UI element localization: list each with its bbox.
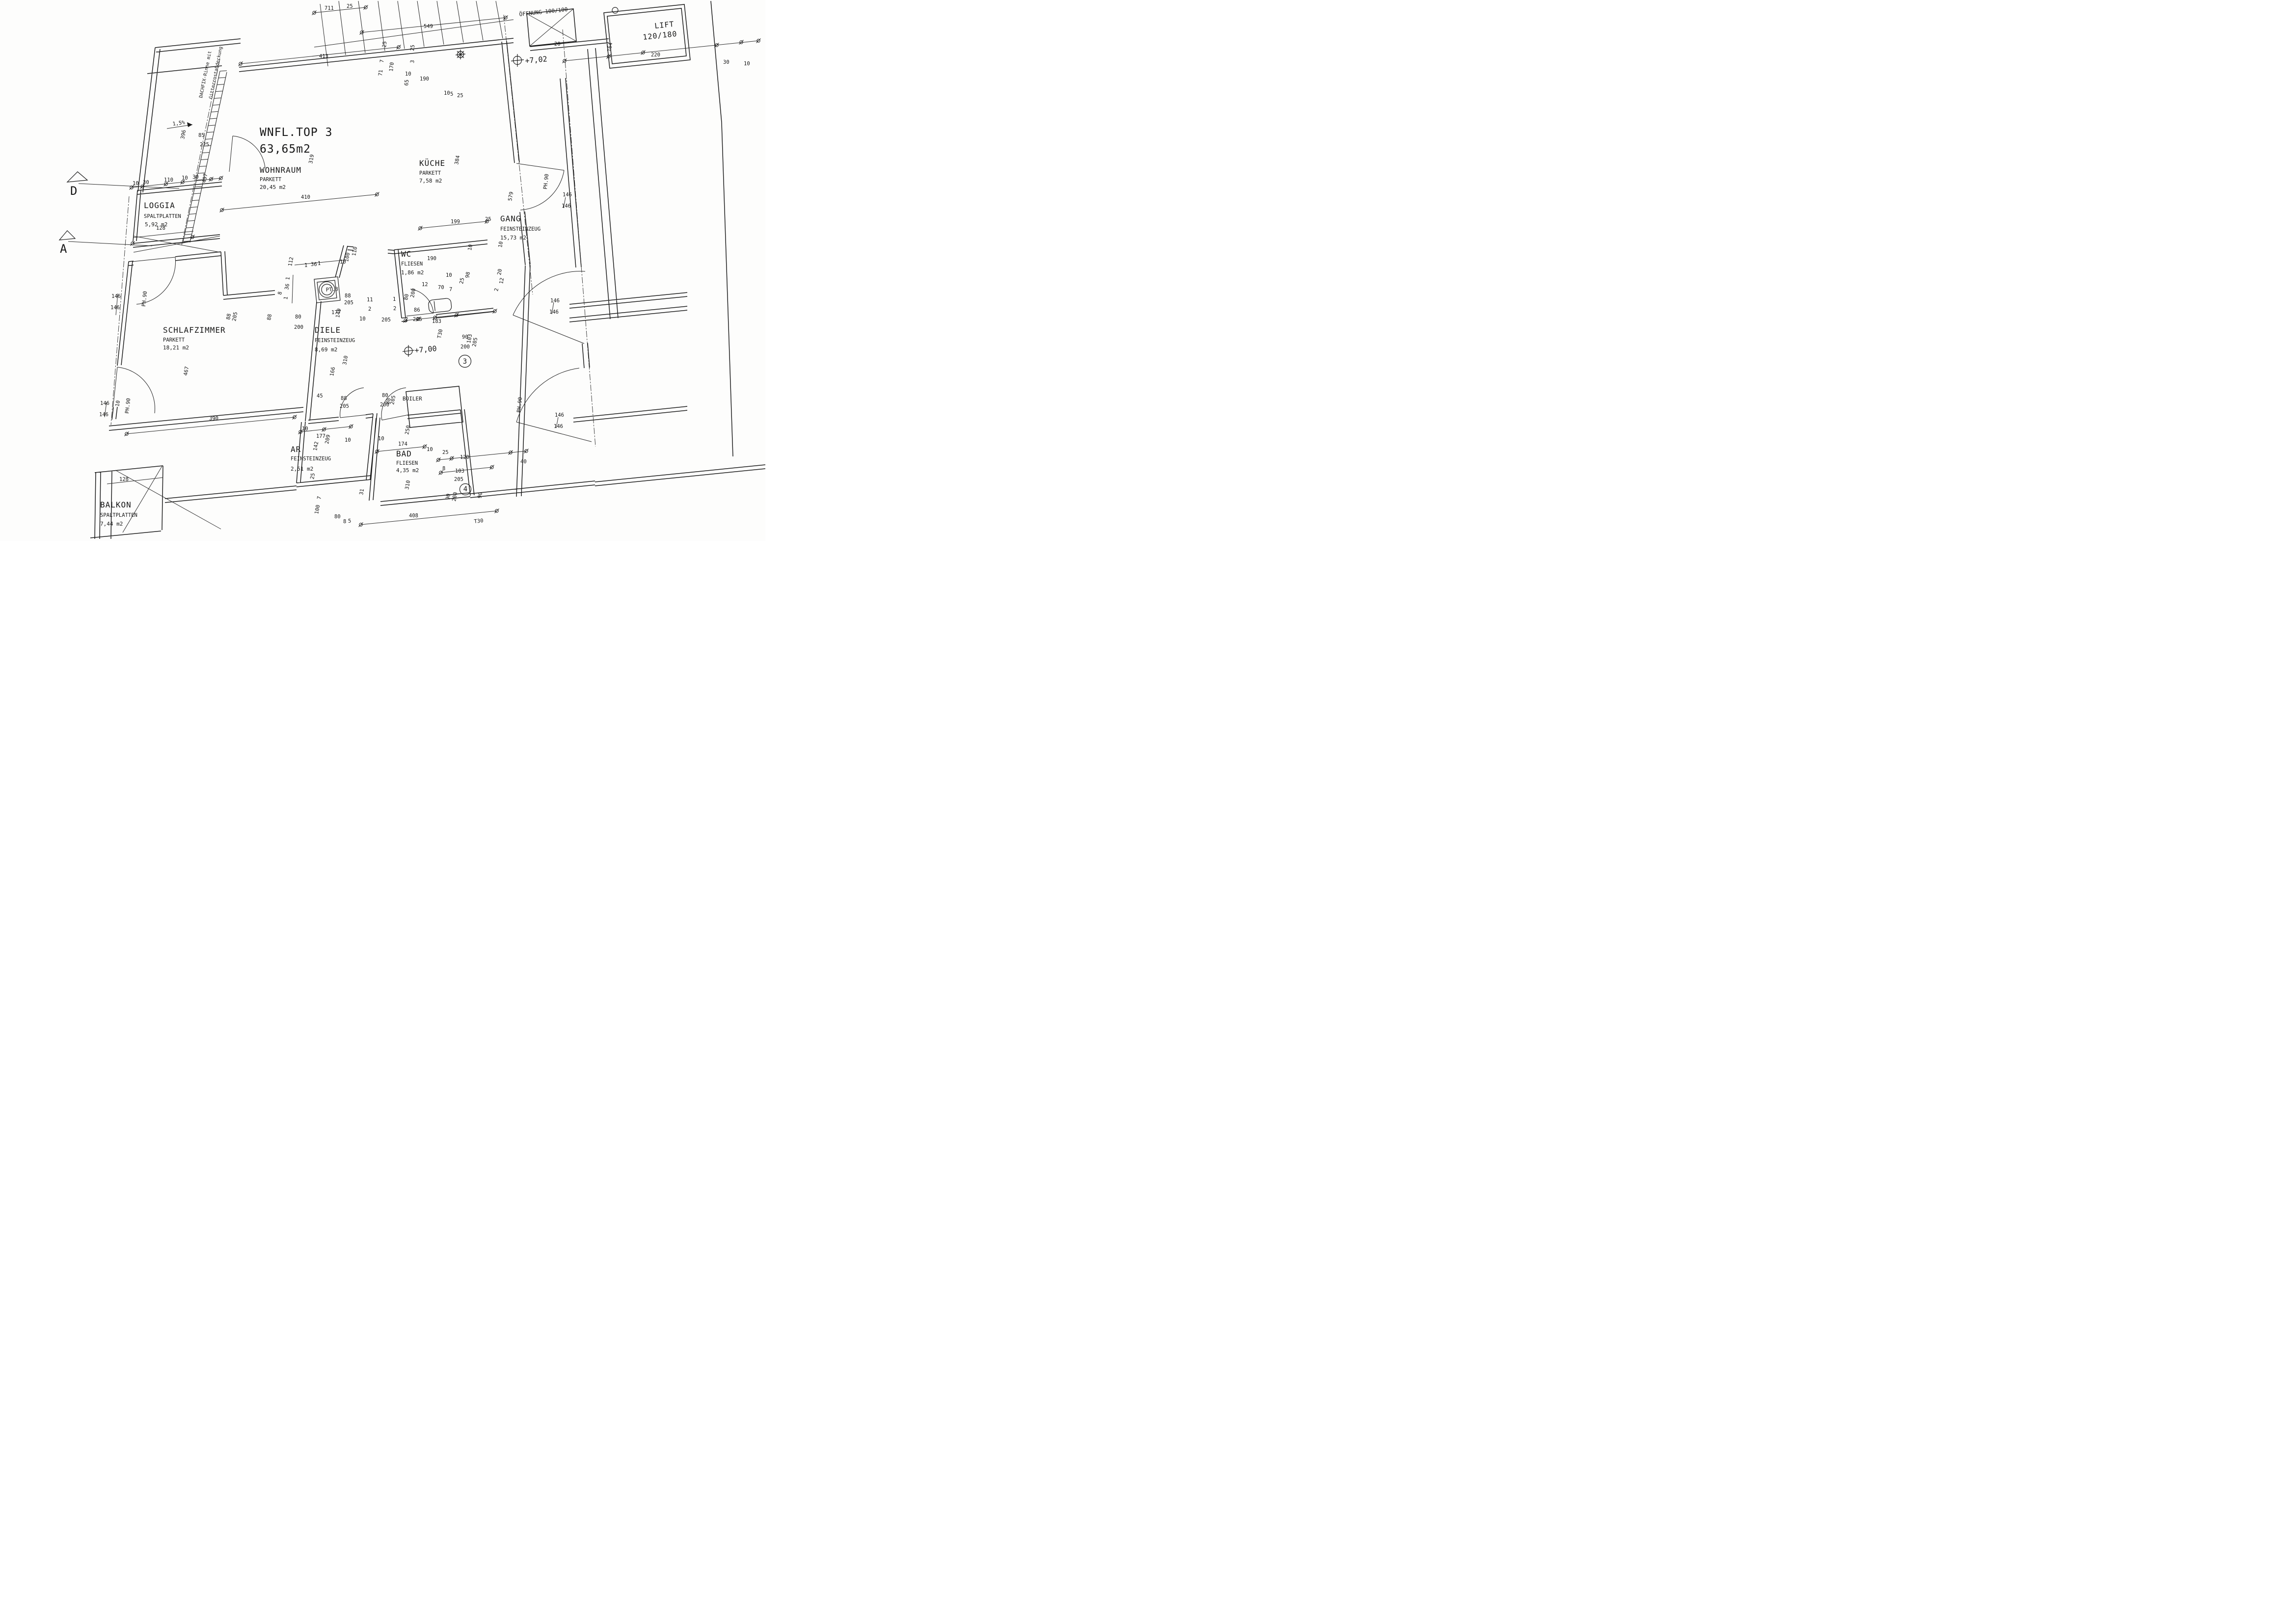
room-wc: WC: [401, 249, 411, 259]
dim-tick: [493, 309, 497, 314]
floor-plan-drawing: WNFL.TOP 363,65m2WOHNRAUMPARKETT20,45 m2…: [0, 0, 765, 541]
dim-label: 170: [388, 62, 395, 72]
stair-treads: [339, 1, 503, 55]
room-schlafzimmer-area: 18,21 m2: [163, 345, 189, 351]
dim-label: 8: [442, 466, 445, 472]
plan-total-area: 63,65m2: [260, 143, 311, 156]
dim-label: 10: [497, 241, 504, 248]
dim-label: 408: [409, 513, 418, 519]
dim-label: 98: [464, 271, 471, 279]
room-kueche-material: PARKETT: [419, 170, 441, 176]
dim-label: 225: [200, 142, 209, 148]
room-kueche: KÜCHE: [419, 159, 445, 168]
dim-tick: [360, 30, 364, 35]
dim-tick: [375, 192, 379, 197]
dim-label: 30: [723, 59, 729, 65]
room-loggia-material: SPALTPLATTEN: [144, 213, 181, 219]
dim-label: 25: [309, 473, 316, 480]
dim-label: 390: [209, 416, 218, 422]
dim-label: 10: [427, 447, 433, 452]
dim-tick: [418, 226, 423, 231]
dim-tick: [220, 208, 224, 213]
dim-tick: [509, 451, 513, 455]
dim-label: 10: [467, 244, 474, 251]
room-diele-material: FEINSTEINZEUG: [315, 338, 355, 344]
dim-label: 200: [409, 288, 417, 298]
dim-label: 25: [347, 3, 353, 9]
dim-label: 220: [651, 52, 660, 58]
dim-label: 110: [351, 246, 358, 257]
dim-label: 2: [368, 306, 371, 312]
level-marker-700: [403, 345, 414, 357]
section-arrow-a: [59, 231, 75, 240]
level-marker-700-label: +7,00: [414, 344, 437, 355]
dim-label: 205: [231, 312, 239, 322]
dim-label: 177: [316, 433, 325, 439]
dim-label: 100: [344, 252, 351, 263]
dim-label: 25: [459, 277, 465, 285]
dim-label: 128: [156, 225, 165, 231]
dim-label: 549: [424, 24, 433, 29]
room-wohnraum-material: PARKETT: [260, 177, 282, 183]
dim-label: 200: [460, 344, 470, 350]
dim-label: 10: [405, 71, 411, 77]
dim-tick: [436, 458, 441, 462]
dim-label: 80: [403, 293, 410, 301]
dim-label: 120: [460, 454, 469, 460]
dim-label: 128: [119, 477, 129, 482]
dim-label: 8: [343, 519, 346, 525]
dim-label: 146: [110, 305, 120, 311]
dim-label: 166: [329, 367, 336, 377]
dim-tick: [641, 51, 646, 55]
dim-label: 10: [446, 272, 452, 278]
dim-label: 25: [485, 216, 491, 222]
door-tag-ph90: PH.90: [542, 174, 550, 190]
dim-label: 205: [340, 403, 349, 409]
dim-label: 711: [324, 5, 334, 11]
dim-label: 30: [143, 180, 149, 186]
position-number-4: 4: [463, 485, 467, 493]
dim-label: 112: [287, 257, 295, 267]
dim-label: 20: [554, 41, 561, 47]
room-ar: AR: [291, 445, 301, 454]
dim-label: 10: [182, 175, 188, 181]
dim-tick: [607, 54, 611, 59]
floor-plan: WNFL.TOP 363,65m2WOHNRAUMPARKETT20,45 m2…: [0, 0, 765, 541]
dim-label: 146: [555, 412, 564, 418]
tick-marks: [125, 5, 761, 527]
dim-tick: [495, 509, 499, 513]
dim-tick: [209, 177, 214, 182]
room-balkon-area: 7,44 m2: [100, 521, 123, 527]
section-mark-a: A: [60, 242, 67, 256]
dim-label: 205: [413, 317, 422, 322]
dim-tick: [190, 235, 195, 239]
dim-label: 200: [294, 324, 303, 330]
room-wohnraum-area: 20,45 m2: [260, 184, 286, 190]
room-wohnraum: WOHNRAUM: [260, 165, 301, 175]
dim-label: 88: [345, 293, 351, 299]
room-ar-area: 2,51 m2: [291, 466, 313, 472]
room-diele: DIELE: [315, 325, 341, 335]
dim-label: 90: [477, 492, 484, 499]
dim-label: 70: [438, 285, 444, 291]
room-bad-material: FLIESEN: [396, 460, 418, 466]
dim-label: 80: [382, 393, 388, 399]
room-loggia: LOGGIA: [144, 201, 175, 210]
dim-label: 40: [520, 459, 527, 465]
dim-label: 25: [381, 41, 388, 48]
dim-label: 205: [389, 395, 397, 405]
dim-label: 5: [348, 518, 351, 524]
dim-label: 1: [285, 276, 291, 280]
room-wc-area: 1,86 m2: [401, 269, 424, 276]
dim-label: 20: [496, 268, 503, 276]
dim-label: 190: [420, 76, 429, 82]
dim-label: 11: [367, 297, 373, 303]
dim-label: 1: [393, 296, 396, 302]
room-gang: GANG: [500, 214, 521, 223]
dim-tick: [397, 45, 401, 50]
sun-symbol: [456, 50, 465, 59]
dim-label: 205: [454, 477, 463, 482]
dim-tick: [312, 11, 317, 15]
position-number-3: 3: [463, 358, 467, 366]
dim-label: 25: [409, 44, 416, 51]
dim-label: 71: [378, 69, 384, 76]
dim-label: 384: [454, 155, 461, 165]
dim-label: 103: [455, 468, 464, 474]
dim-label: 2: [393, 306, 396, 312]
dim-label: 146: [563, 192, 572, 198]
level-marker-702: [511, 54, 524, 67]
dim-label: 90: [445, 493, 452, 501]
dim-label: 205: [344, 300, 353, 306]
room-schlafzimmer-material: PARKETT: [163, 337, 185, 343]
door-tag-t30: T30: [436, 329, 444, 339]
door-tag-t30: T30: [474, 518, 484, 525]
dim-label: 1: [283, 296, 289, 300]
dim-label: 10: [302, 426, 308, 432]
dim-label: 10: [359, 316, 366, 322]
dim-label: 80: [295, 314, 301, 320]
dim-label: 45: [317, 393, 323, 399]
room-diele-area: 8,69 m2: [315, 346, 337, 353]
dim-tick: [125, 432, 129, 436]
dim-label: 310: [342, 355, 349, 366]
level-marker-702-label: +7,02: [525, 54, 548, 65]
dim-tick: [715, 43, 719, 48]
dim-label: 100: [314, 505, 321, 515]
dim-label: 497: [201, 173, 209, 184]
dim-tick: [524, 449, 529, 453]
room-gang-material: FEINSTEINZEUG: [500, 226, 540, 232]
dim-label: 209: [324, 434, 331, 445]
door-tag-ph90: PH.90: [124, 398, 132, 414]
dim-tick: [490, 465, 494, 470]
dim-tick: [293, 415, 297, 420]
room-balkon-material: SPALTPLATTEN: [100, 512, 137, 518]
dim-tick: [504, 16, 508, 20]
dim-label: 164: [606, 42, 614, 53]
dim-label: 174: [398, 441, 407, 447]
dim-label: 5: [450, 91, 453, 97]
dim-tick: [364, 5, 368, 10]
dim-label: 146: [550, 298, 560, 304]
dim-label: 86: [414, 307, 420, 313]
dim-label: 146: [100, 400, 109, 406]
dim-label: 579: [507, 191, 514, 202]
dimension-lines: [68, 4, 758, 532]
dim-label: 10: [133, 181, 139, 186]
slope-arrowhead: [187, 122, 192, 127]
section-arrow-d: [67, 172, 87, 182]
dim-tick: [349, 425, 353, 429]
dim-tick: [239, 62, 243, 66]
dim-label: 310: [404, 480, 411, 490]
dim-label: 146: [99, 412, 108, 418]
point-label: PT.3: [325, 286, 338, 293]
dim-tick: [322, 427, 326, 432]
dim-label: 7: [316, 496, 323, 500]
dim-label: 396: [180, 130, 187, 140]
dim-tick: [756, 39, 761, 43]
dim-label: 183: [432, 319, 441, 324]
dim-tick: [455, 313, 459, 318]
dim-label: 10: [114, 400, 121, 407]
dim-label: 205: [381, 317, 391, 323]
dim-tick: [359, 523, 363, 527]
door-tag-ph90: PH.90: [516, 397, 523, 413]
dim-label: 2: [493, 288, 500, 292]
dim-tick: [563, 59, 567, 63]
dim-label: 12: [422, 282, 428, 288]
dim-label: 65: [404, 79, 410, 86]
dim-label: 85: [198, 133, 205, 138]
dim-label: 36: [284, 283, 291, 291]
dachfix-channel-hatch: [183, 71, 227, 242]
dim-label: 25: [457, 93, 463, 99]
dim-label: 36: [311, 262, 317, 267]
opening-label: ÖFFNUNG 100/100: [519, 6, 568, 18]
dim-label: 10: [444, 90, 450, 96]
dim-label: 146: [549, 309, 559, 315]
dim-label: 149: [335, 308, 342, 319]
dim-label: 80: [334, 514, 341, 520]
dim-label: 30: [192, 174, 199, 180]
plan-title: WNFL.TOP 3: [260, 126, 332, 139]
room-ar-material: FEINSTEINZEUG: [291, 456, 331, 462]
dim-label: 190: [427, 256, 436, 262]
room-lift: LIFT: [654, 20, 675, 30]
dim-label: 8: [277, 291, 283, 295]
room-schlafzimmer: SCHLAFZIMMER: [163, 325, 226, 335]
small-circle-mark: [612, 7, 618, 13]
room-bad-area: 4,35 m2: [396, 467, 419, 474]
dim-label: 10: [345, 437, 351, 443]
dim-tick: [219, 176, 223, 181]
dim-label: 25: [442, 450, 449, 455]
dim-label: 88: [341, 396, 347, 401]
dim-label: 250: [404, 425, 411, 435]
room-kueche-area: 7,58 m2: [419, 178, 442, 184]
dim-label: 1: [304, 263, 307, 268]
dim-label: 31: [358, 488, 365, 496]
room-gang-area: 15,73 m2: [500, 235, 526, 241]
dim-label: 205: [471, 337, 479, 347]
dim-label: 467: [183, 366, 190, 376]
dim-label: 199: [451, 219, 460, 225]
dim-tick: [375, 450, 379, 454]
dim-label: 10: [744, 61, 750, 67]
dim-label: 110: [164, 177, 173, 183]
dim-label: 12: [498, 277, 505, 285]
dim-label: 142: [312, 441, 320, 452]
door-tag-ph90: PH.90: [141, 291, 148, 307]
room-balkon: BALKON: [100, 500, 132, 509]
dim-label: 200: [451, 492, 459, 502]
dim-label: 7: [449, 287, 452, 293]
dim-tick: [739, 40, 744, 45]
dim-label: 146: [554, 424, 563, 429]
dim-label: 410: [301, 194, 310, 200]
room-bad: BAD: [396, 449, 412, 458]
dim-label: 88: [266, 314, 273, 321]
boiler-label: BOILER: [403, 396, 422, 402]
dim-label: 3: [409, 60, 416, 64]
room-lift-size: 120/180: [643, 29, 678, 42]
dim-tick: [450, 456, 454, 461]
section-mark-d: D: [70, 184, 77, 198]
dim-label: 319: [308, 154, 315, 164]
dim-tick: [404, 319, 408, 323]
dim-label: 1: [318, 261, 321, 266]
dim-label: 7: [379, 59, 385, 63]
dim-label: 146: [111, 293, 121, 299]
dim-label: 413: [319, 53, 328, 59]
dim-label: 146: [562, 203, 571, 209]
room-wc-material: FLIESEN: [401, 261, 423, 267]
dim-label: 10: [378, 436, 384, 442]
